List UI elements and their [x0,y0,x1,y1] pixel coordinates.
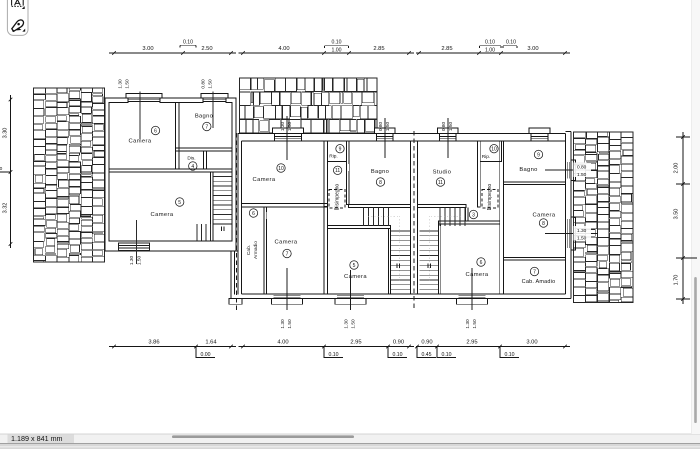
svg-text:Camera: Camera [274,240,297,246]
svg-text:1.30: 1.30 [280,319,286,329]
svg-text:3.50: 3.50 [674,209,680,220]
svg-text:0.45: 0.45 [421,352,431,358]
svg-text:1.30: 1.30 [129,256,135,266]
svg-text:4: 4 [191,164,194,170]
svg-text:5: 5 [178,200,181,206]
svg-text:Studio: Studio [433,170,452,176]
svg-text:1.50: 1.50 [577,172,587,178]
svg-text:11: 11 [438,180,443,186]
svg-text:0.10: 0.10 [506,39,516,45]
svg-text:8: 8 [379,180,382,186]
svg-text:3.00: 3.00 [142,46,153,52]
svg-text:0.80: 0.80 [441,122,447,132]
svg-text:7: 7 [205,124,208,130]
svg-text:0.10: 0.10 [0,166,3,172]
svg-text:Bagno: Bagno [519,167,537,173]
svg-text:10: 10 [491,147,497,153]
svg-text:Cab. Amadio: Cab. Amadio [522,279,556,285]
svg-text:3.32: 3.32 [3,203,9,214]
svg-text:Disimpegno: Disimpegno [335,184,341,211]
svg-text:0.00: 0.00 [200,352,210,358]
svg-text:3.30: 3.30 [3,128,9,139]
svg-text:2.95: 2.95 [350,339,361,345]
svg-text:1.50: 1.50 [351,319,357,329]
svg-text:5: 5 [353,263,356,269]
svg-text:Bagno: Bagno [195,114,213,120]
svg-text:10: 10 [278,166,284,172]
svg-text:7: 7 [533,269,536,275]
svg-text:Camera: Camera [252,177,275,183]
svg-text:Camera: Camera [532,213,555,219]
svg-text:8: 8 [542,221,545,227]
svg-text:1.50: 1.50 [472,319,478,329]
svg-text:2.00: 2.00 [674,163,680,174]
svg-text:1.50: 1.50 [577,235,587,241]
svg-text:6: 6 [154,128,157,134]
svg-text:1.50: 1.50 [287,319,293,329]
svg-text:Camera: Camera [344,274,367,280]
svg-text:1.30: 1.30 [118,79,124,89]
svg-text:0.10: 0.10 [392,352,402,358]
svg-text:1.00: 1.00 [485,48,495,54]
svg-text:1.00: 1.00 [331,48,341,54]
svg-text:1.189 x 841 mm: 1.189 x 841 mm [11,434,63,443]
svg-text:Camera: Camera [465,272,488,278]
svg-text:1.50: 1.50 [125,79,131,89]
svg-text:Rip.: Rip. [482,154,491,160]
svg-text:1.70: 1.70 [674,275,680,286]
svg-text:0.90: 0.90 [421,339,432,345]
svg-text:11: 11 [335,168,340,174]
svg-text:1.64: 1.64 [205,339,217,345]
svg-text:0.80: 0.80 [577,165,587,171]
svg-text:Armadio: Armadio [253,241,259,259]
svg-text:0.10: 0.10 [183,39,193,45]
svg-text:1.50: 1.50 [208,79,214,89]
svg-text:3.00: 3.00 [527,46,538,52]
svg-text:1.50: 1.50 [287,122,293,132]
svg-text:0.90: 0.90 [393,339,404,345]
svg-text:6: 6 [480,260,483,266]
svg-text:7: 7 [286,251,289,257]
svg-text:0.10: 0.10 [485,39,495,45]
svg-text:0.10: 0.10 [331,39,341,45]
svg-text:Rip.: Rip. [329,154,338,160]
svg-text:Camera: Camera [150,212,173,218]
svg-text:1.50: 1.50 [448,122,454,132]
svg-text:0.10: 0.10 [441,352,451,358]
svg-text:1.30: 1.30 [280,122,286,132]
svg-text:1.30: 1.30 [465,319,471,329]
svg-text:2.95: 2.95 [466,339,477,345]
svg-text:0.80: 0.80 [378,122,384,132]
svg-text:0.10: 0.10 [504,352,514,358]
svg-text:Disimpegno: Disimpegno [487,184,493,211]
svg-text:2.85: 2.85 [441,46,452,52]
svg-text:3.00: 3.00 [526,339,537,345]
svg-text:Camera: Camera [128,139,151,145]
svg-text:2.50: 2.50 [201,46,212,52]
svg-text:Dis.: Dis. [187,156,195,162]
svg-text:Bagno: Bagno [371,169,389,175]
svg-text:0.10: 0.10 [328,352,338,358]
svg-text:1.50: 1.50 [385,122,391,132]
svg-text:Cab.: Cab. [246,245,252,255]
svg-text:6: 6 [252,211,255,217]
svg-text:3.86: 3.86 [148,339,159,345]
svg-text:1.50: 1.50 [137,256,143,266]
svg-text:3: 3 [472,212,475,218]
svg-text:4.00: 4.00 [278,46,289,52]
svg-text:0.80: 0.80 [201,79,207,89]
svg-text:9: 9 [537,152,540,158]
svg-text:1.30: 1.30 [577,228,587,234]
svg-text:2.85: 2.85 [373,46,384,52]
svg-text:9: 9 [339,147,342,153]
svg-text:1.30: 1.30 [343,319,349,329]
svg-text:4.00: 4.00 [277,339,288,345]
